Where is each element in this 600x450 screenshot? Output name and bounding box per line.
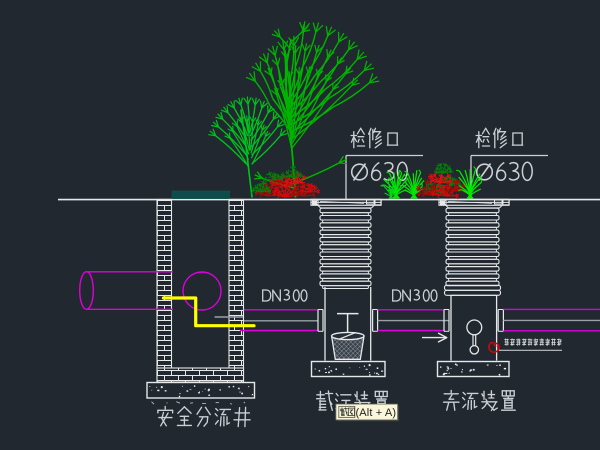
svg-text:(Alt + A): (Alt + A)	[356, 407, 397, 419]
